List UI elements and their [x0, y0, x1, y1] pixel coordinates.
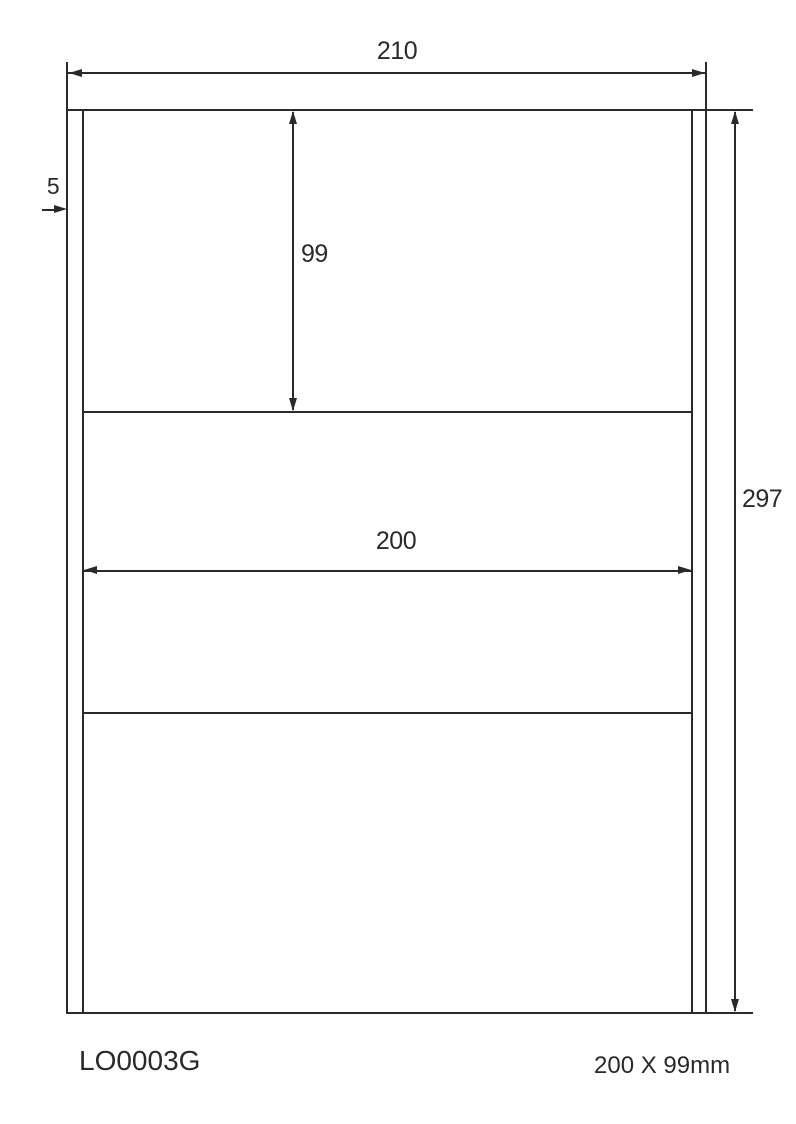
label-divider-2 [82, 712, 693, 714]
page-width-label: 210 [297, 38, 497, 66]
label-size-label: 200 X 99mm [594, 1052, 730, 1080]
page-height-label: 297 [742, 486, 782, 514]
extension-line-right-bottom [707, 1012, 753, 1014]
arrowhead-down-icon [731, 999, 739, 1012]
diagram-canvas: 210 297 99 200 5 LO0003G 200 X 99mm [0, 0, 796, 1124]
arrowhead-up-icon [289, 111, 297, 124]
left-margin-line [82, 110, 84, 1013]
label-height-label: 99 [301, 241, 328, 269]
side-margin-label: 5 [40, 174, 66, 199]
product-code-label: LO0003G [79, 1045, 200, 1077]
extension-line-top-left [66, 62, 68, 109]
page-width-dimension-line [68, 72, 705, 74]
label-width-label: 200 [296, 528, 496, 556]
arrowhead-left-icon [69, 69, 82, 77]
arrowhead-right-icon [692, 69, 705, 77]
extension-line-top-right [705, 62, 707, 109]
arrowhead-right-icon [54, 205, 67, 213]
label-divider-1 [82, 411, 693, 413]
arrowhead-right-icon [678, 566, 691, 574]
arrowhead-up-icon [731, 111, 739, 124]
arrowhead-left-icon [84, 566, 97, 574]
label-height-dimension-line [292, 112, 294, 410]
right-margin-line [691, 110, 693, 1013]
arrowhead-down-icon [289, 398, 297, 411]
label-width-dimension-line [84, 570, 691, 572]
extension-line-right-top [707, 109, 753, 111]
page-height-dimension-line [734, 112, 736, 1011]
sheet-outline [66, 109, 707, 1014]
